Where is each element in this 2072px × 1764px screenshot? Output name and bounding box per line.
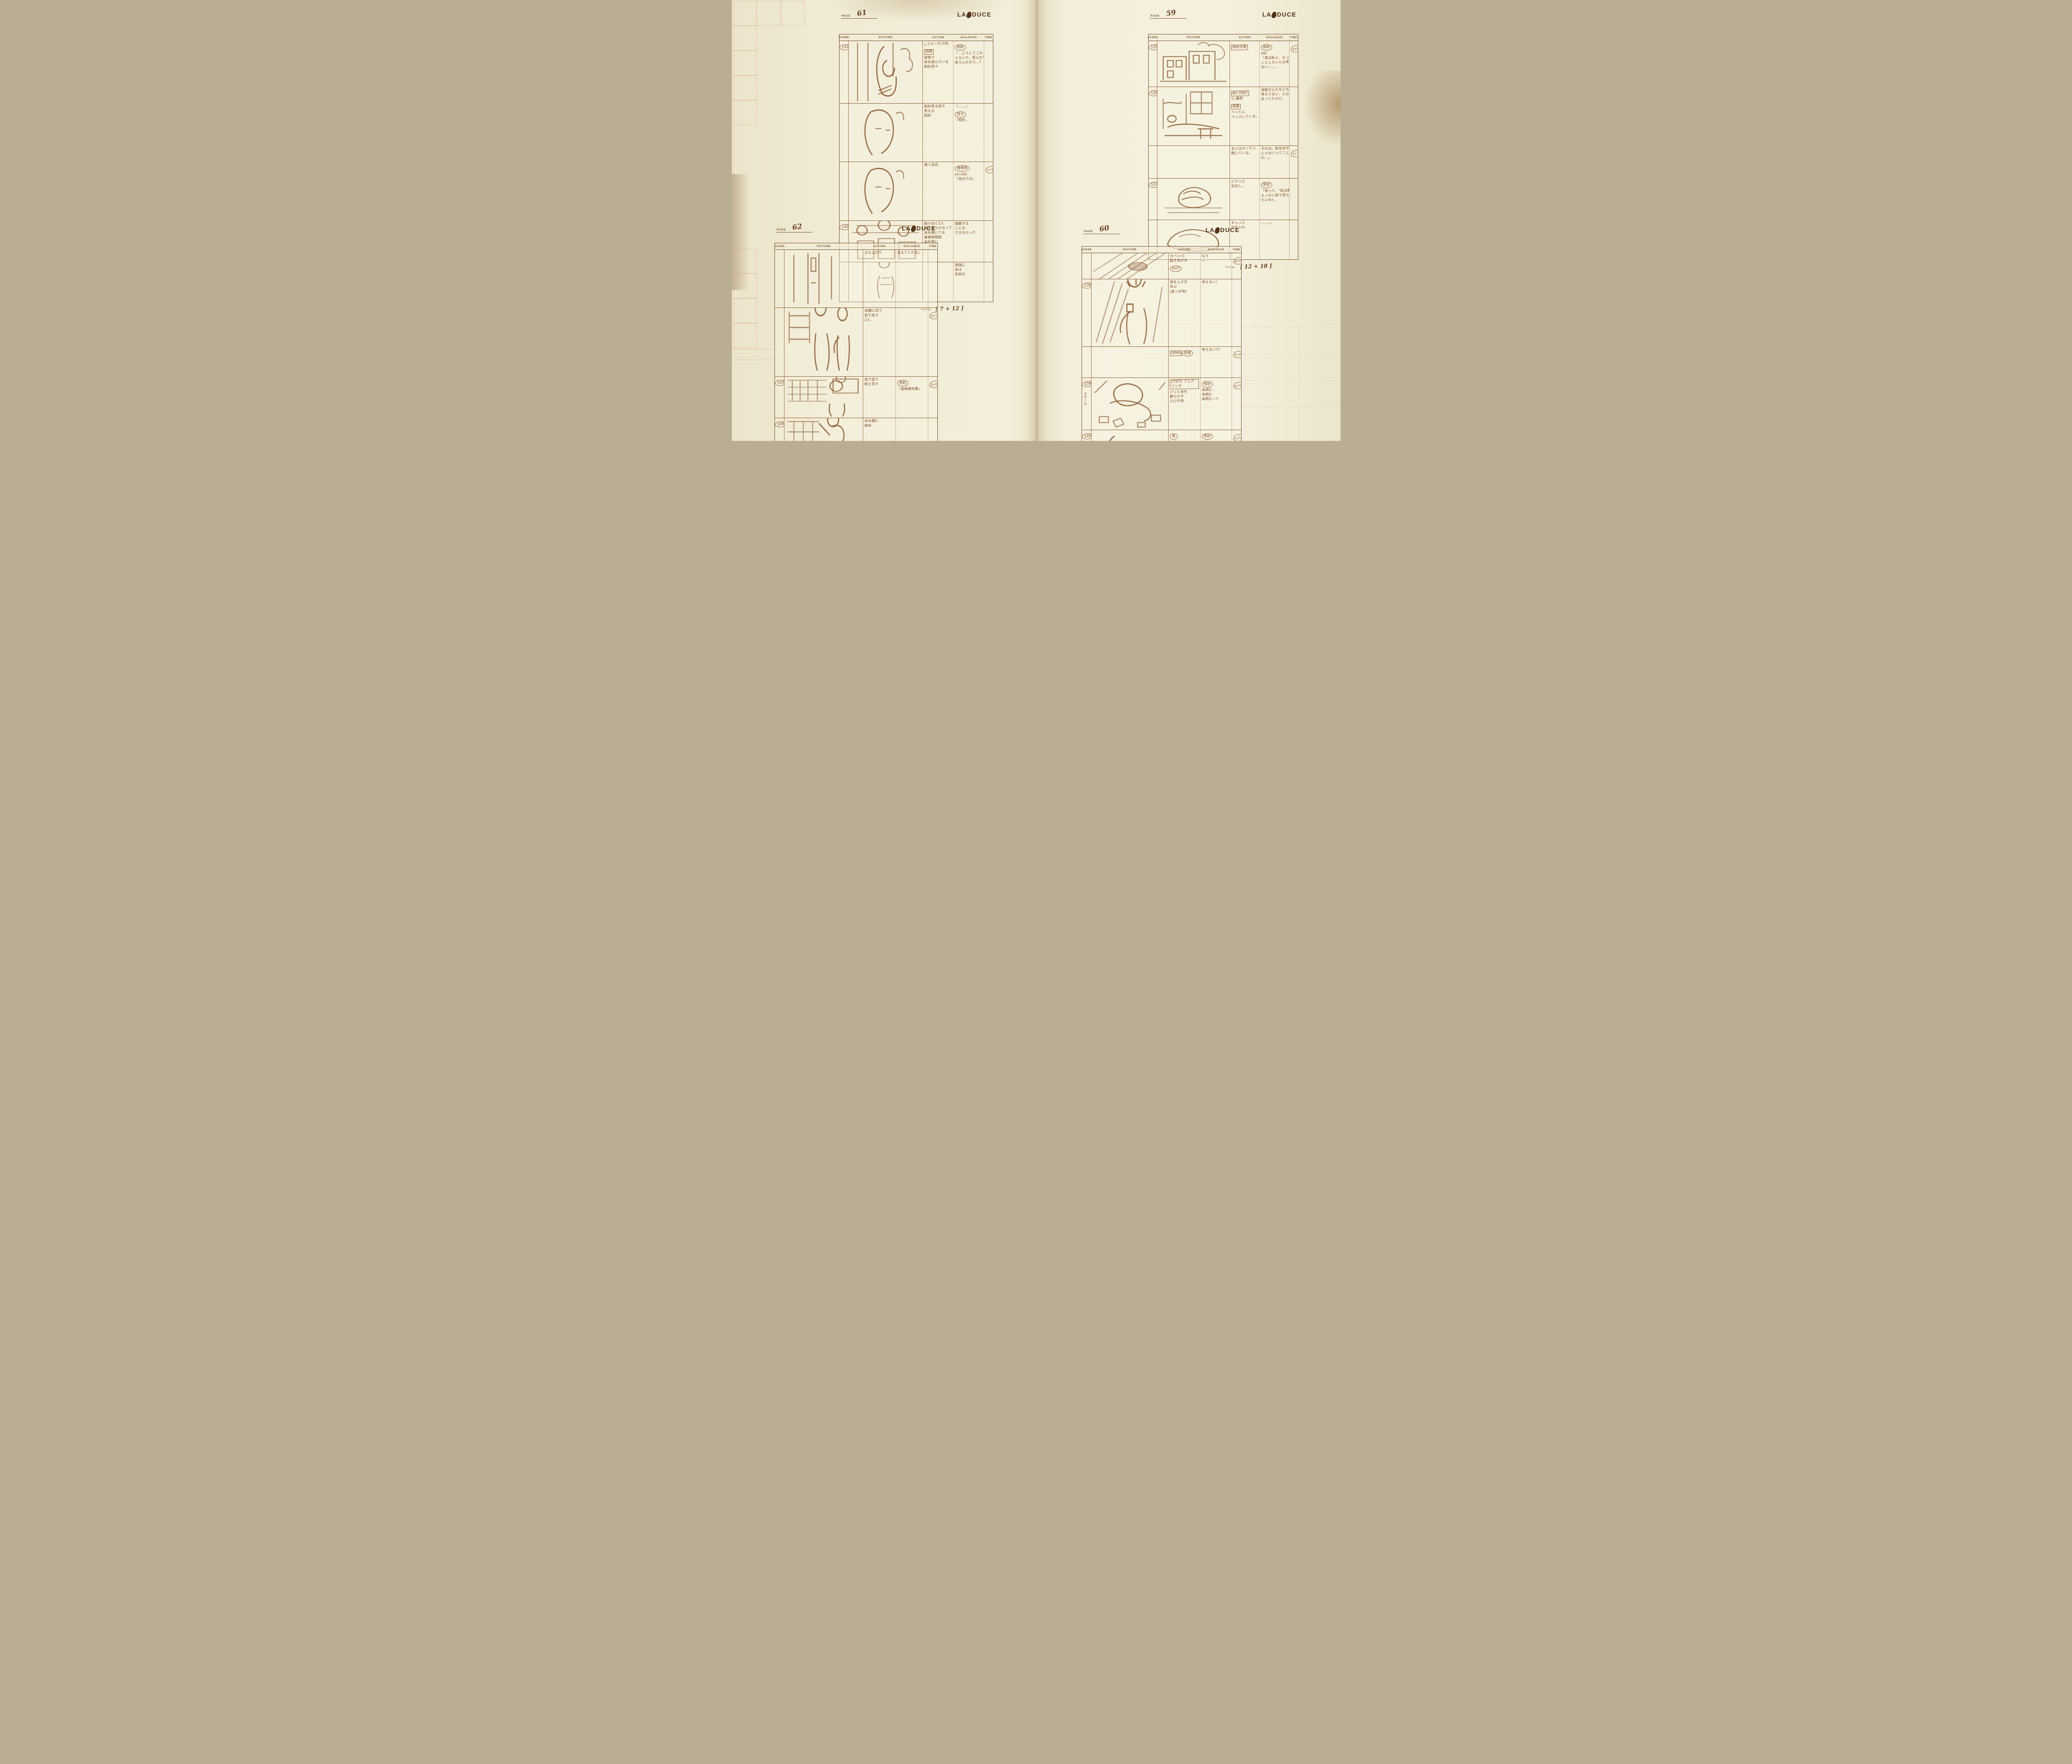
sheet-header: PAGE 60 LA DUCE (1082, 222, 1242, 246)
column-header-picture: PICTURE (784, 243, 863, 249)
scene-cell (840, 162, 849, 220)
leaf-logo-icon (1271, 11, 1278, 19)
speaker-name: 和紗 (1261, 44, 1272, 51)
handwritten-note: 思うんだろう…? (955, 60, 983, 65)
storyboard-row: 本棚に向う目で追う2人.5+18 (775, 308, 937, 377)
column-header-action: ACTION (923, 34, 954, 41)
registration-mark (733, 249, 757, 273)
laduce-logo: LA DUCE (957, 12, 991, 18)
scene-cell (775, 250, 785, 307)
scene-number: 143 (775, 380, 785, 386)
storyboard-rows: 立ち上がり与えてくれる」本棚に向う目で追う2人.5+18143目で追う和と百々和… (775, 250, 937, 441)
speaker-name: 和紗 (955, 44, 966, 51)
sketch-house (1157, 41, 1230, 87)
handwritten-note: ひびき有 (1170, 399, 1199, 404)
scene-number: 144 (775, 421, 785, 428)
picture-cell (1157, 87, 1230, 145)
note-box: 2T打ち フェアリング (1170, 379, 1199, 390)
dialogue-cell: もう— (1201, 253, 1232, 279)
time-badge: 7+18 (1290, 149, 1297, 158)
handwritten-note: △フォーカスIN (924, 41, 952, 46)
picture-cell (784, 308, 863, 376)
storyboard-row: 135和紗の家和紗(M)「泉は私と、えっちいことしたいとは考えてない…、、、3+… (1149, 41, 1298, 87)
storyboard-row: 和紗見る百々考える和紗「……」百々「和紗… (840, 104, 993, 162)
logo-text-left: LA (1205, 227, 1215, 234)
dialogue-cell (896, 418, 928, 441)
time-cell: 8+18 (1232, 378, 1241, 430)
picture-cell (1157, 146, 1230, 178)
handwritten-note: 「…どうしてこれ (955, 51, 983, 56)
sketch-rush-feet (1092, 253, 1168, 279)
page-label: PAGE (842, 15, 851, 17)
page-gutter-shadow (1027, 0, 1046, 441)
scene-cell: 138 (1082, 279, 1092, 346)
laduce-logo: LA DUCE (1262, 12, 1296, 18)
sketch-face-hand (1092, 430, 1168, 441)
column-headers: SCENE PICTURE ACTION DIALOGUE TIME (840, 34, 993, 41)
registration-mark (733, 273, 757, 298)
scene-number: 137 (1149, 181, 1158, 188)
scene-number: 136 (1149, 90, 1158, 97)
storyboard-row: 137ピクッと反応し。和紗「待って、〝私は泉にえっちい目で見られたいの?〟 (1149, 179, 1298, 220)
time-cell (984, 221, 992, 262)
dialogue-cell: それは、私を好きじゃないってことなのか…」 (1260, 146, 1290, 178)
dialogue-cell: 、、、、、」 (1260, 220, 1290, 259)
sketch-bed-sleep (1157, 179, 1230, 220)
sketch-scream (1092, 279, 1168, 346)
page-field: PAGE 62 (776, 223, 813, 232)
handwritten-note: 納め (864, 423, 894, 428)
scene-cell: 136 (1149, 87, 1158, 145)
note-box: BG ONLY (1231, 90, 1249, 96)
margin-note: スチール (1083, 392, 1088, 405)
time-cell: 3+09 (1290, 41, 1298, 87)
action-cell: 本を棚に納め (863, 418, 896, 441)
dialogue-cell: 「……」百々「和紗… (954, 104, 984, 162)
page-number: 60 (1099, 224, 1110, 233)
handwritten-note: 「自分では」 (955, 177, 983, 181)
time-badge: 6+12 (1233, 256, 1241, 265)
picture-cell (1092, 279, 1169, 346)
handwritten-note: 和紗百々 (924, 64, 952, 69)
speaker-name: 和紗 (897, 380, 908, 387)
sketch-collapse (1092, 378, 1168, 430)
column-header-scene: SCENE (1149, 34, 1158, 41)
scene-cell (775, 308, 785, 376)
scene-cell: 144 (775, 418, 785, 441)
column-header-dialogue: DIALOGUE (1201, 247, 1232, 253)
grid-guide (1299, 327, 1299, 441)
handwritten-note: 与えてくれる」 (897, 250, 927, 256)
logo-text-left: LA (1262, 12, 1271, 18)
storyboard-row: 143目で追う和と百々和紗「曾根崎先輩」2+00 (775, 377, 937, 418)
sketch-window-read (849, 41, 922, 103)
scene-cell: 137 (1149, 179, 1158, 220)
sketch-reach-shelf (784, 418, 863, 441)
scene-number: 141 (840, 44, 849, 51)
time-badge: 5+18 (929, 311, 937, 320)
dialogue-cell: 和紗「あ……」 (1201, 430, 1232, 441)
column-header-picture: PICTURE (1092, 247, 1169, 253)
sketch-face (849, 104, 922, 162)
scene-cell: 143 (775, 377, 785, 418)
time-badge: 2+00 (1233, 350, 1241, 359)
handwritten-note: 和紗 (924, 113, 952, 118)
time-cell: 6+12 (1232, 253, 1241, 279)
handwritten-note: 言ってたけど、 (1261, 97, 1288, 102)
time-badge: 7+12 (985, 165, 993, 174)
registration-mark (733, 75, 757, 100)
speaker-name: 和紗 (1261, 182, 1272, 189)
picture-cell (849, 104, 923, 162)
time-cell: 7+12 (984, 162, 992, 220)
registration-mark (757, 1, 781, 26)
column-header-scene: SCENE (1082, 247, 1092, 253)
picture-cell (849, 162, 923, 220)
page-label: PAGE (1151, 15, 1160, 17)
storyboard-table: SCENE PICTURE ACTION DIALOGUE TIME 立ち上がり… (775, 243, 938, 441)
picture-cell (1092, 253, 1169, 279)
storyboard-row: 導く反応曾根崎(4+00)「自分では」7+12 (840, 162, 993, 220)
storyboard-row: 144本を棚に納め (775, 418, 937, 441)
scene-cell (1082, 347, 1092, 377)
storyboard-table: SCENE PICTURE ACTION DIALOGUE TIME ガバッ!と… (1082, 246, 1242, 441)
laduce-logo: LA DUCE (902, 225, 936, 232)
scene-number: 140 (1082, 433, 1092, 440)
time-cell (1290, 220, 1298, 259)
time-cell (928, 250, 937, 307)
handwritten-note: 反応し。 (1231, 184, 1258, 189)
note-box: 回想 (924, 49, 934, 55)
handwritten-note: できなかった (955, 230, 983, 235)
dialogue-cell: 考えない! (1201, 279, 1232, 346)
page-number: 59 (1165, 8, 1176, 18)
action-cell: 立ち上がり (863, 250, 896, 307)
registration-mark (733, 323, 757, 348)
note-box: 和紗の家 (1231, 45, 1248, 51)
scene-cell (1149, 146, 1158, 178)
storyboard-row: 139スチール2T打ち フェアリングバッと本を散らかすひびき有和紗本読む本読む本… (1082, 378, 1241, 431)
dialogue-cell: 考えない!!! (1201, 347, 1232, 377)
action-cell: 和紗見る百々考える和紗 (923, 104, 954, 162)
time-cell (984, 104, 992, 162)
registration-mark (733, 51, 757, 75)
sketch-duo-shelf (784, 308, 863, 376)
handwritten-note: か…」 (1261, 155, 1288, 160)
page-field: PAGE 60 (1083, 225, 1120, 234)
time-badge: 3+09 (1290, 44, 1297, 53)
column-headers: SCENE PICTURE ACTION DIALOGUE TIME (1149, 34, 1298, 41)
action-cell: 和紗の家 (1230, 41, 1260, 87)
dialogue-cell: 和紗「曾根崎先輩」 (896, 377, 928, 418)
column-header-time: TIME (928, 243, 937, 249)
column-headers: SCENE PICTURE ACTION DIALOGUE TIME (775, 243, 937, 250)
logo-text-left: LA (902, 225, 911, 232)
handwritten-note: 、、、、、」 (1261, 221, 1288, 226)
handwritten-note: 和と百々 (864, 382, 894, 387)
speaker-name: 泉 (1170, 433, 1178, 440)
note-box: 部屋 (1231, 104, 1241, 110)
column-header-picture: PICTURE (849, 34, 923, 41)
action-cell: 泉和紗ハッとする和紗 (1169, 430, 1201, 441)
note-box: QPAN (1170, 351, 1182, 356)
dialogue-cell: 和紗「…どうしてこれぐらいで、死んだりって思うんだろう…? (954, 41, 984, 103)
picture-cell (1092, 430, 1169, 441)
sheet-header: PAGE 59 LA DUCE (1148, 7, 1298, 34)
action-cell: ガバッ!と起きあがるOUT (1169, 253, 1201, 279)
speaker-name: 百々 (955, 111, 966, 118)
column-header-time: TIME (984, 34, 992, 41)
sketch-face2 (849, 162, 922, 220)
column-header-action: ACTION (1169, 247, 1201, 253)
registration-mark (733, 298, 757, 323)
sketch-shelf-inset (784, 377, 863, 418)
handwritten-note: ぐらいで、死んだりって (955, 56, 983, 60)
grid-guide (1245, 327, 1245, 441)
logo-text-right: DUCE (972, 12, 991, 18)
scene-number: 135 (1149, 44, 1158, 51)
picture-cell (784, 418, 863, 441)
logo-text-left: LA (957, 12, 966, 18)
registration-mark (733, 100, 757, 125)
time-badge: 2+00 (929, 380, 937, 389)
dialogue-cell: 和紗(M)「泉は私と、えっちいことしたいとは考えてない…、、、 (1260, 41, 1290, 87)
registration-mark (733, 125, 734, 229)
handwritten-note: 和紗 (1170, 440, 1199, 441)
action-cell: 目で追う和と百々 (863, 377, 896, 418)
page-number: 61 (856, 8, 867, 18)
time-cell (1232, 279, 1241, 346)
sketch-door (784, 250, 863, 307)
handwritten-note: 起きあがる (1170, 258, 1199, 264)
column-header-dialogue: DIALOGUE (1260, 34, 1290, 41)
handwritten-note: (息つぎ有) (1170, 289, 1199, 295)
storyboard-row: まどはカーテン閉じている。それは、私を好きじゃないってことなのか…」7+18 (1149, 146, 1298, 179)
time-badge: 1+12 (1233, 433, 1241, 441)
scene-cell (1082, 253, 1092, 279)
dialogue-cell: 和紗本読む本読む本読む—!! (1201, 378, 1232, 430)
speaker-name: 和紗 (1201, 433, 1213, 440)
handwritten-note: 考えない!!! (1201, 347, 1230, 353)
scene-cell: 139スチール (1082, 378, 1092, 430)
time-cell (1290, 179, 1298, 220)
column-header-dialogue: DIALOGUE (896, 243, 928, 249)
time-cell: 5+18 (928, 308, 937, 376)
handwritten-note: 考えない! (1201, 280, 1230, 286)
dialogue-cell: 与えてくれる」 (896, 250, 928, 307)
handwritten-note: 2人. (864, 317, 894, 323)
dialogue-cell: 感情に本は名前を (954, 262, 984, 301)
sketch-bedroom (1157, 87, 1230, 145)
storyboard-rows: ガバッ!と起きあがるOUTもう—6+12138耳をふさぎ叫ぶ(息つぎ有)考えない… (1082, 253, 1241, 441)
scene-cell: 135 (1149, 41, 1158, 87)
handwritten-note: つっぷしている。 (1231, 114, 1258, 119)
dialogue-cell: 和紗「待って、〝私は泉にえっちい目で見られたいの?〟 (1260, 179, 1290, 220)
storyboard-sheet-page-61: PAGE 61 LA DUCE SCENE PICTURE ACTION DIA… (839, 7, 993, 225)
registration-mark (781, 1, 805, 26)
registration-mark (732, 349, 777, 349)
action-cell: まどはカーテン閉じている。 (1230, 146, 1260, 178)
time-cell: 7+18 (1290, 146, 1298, 178)
total-value: [ 7 + 12 ] (935, 305, 964, 312)
handwritten-note: (M) (1261, 51, 1288, 56)
handwritten-note: ない…、、、 (1261, 65, 1288, 70)
column-header-scene: SCENE (840, 34, 849, 41)
laduce-logo: LA DUCE (1205, 227, 1239, 234)
storyboard-row: ガバッ!と起きあがるOUTもう—6+12 (1082, 253, 1241, 279)
storyboard-row: 141△フォーカスIN回想部室で本を読んでいる和紗百々和紗「…どうしてこれぐらい… (840, 41, 993, 104)
action-cell: QPAN読者 (1169, 347, 1201, 377)
column-header-dialogue: DIALOGUE (954, 34, 984, 41)
registration-mark (733, 26, 757, 51)
handwritten-note: 立ち上がり (864, 250, 894, 256)
dialogue-cell: 浅田さんたちとも考えてない、とは言ってたけど、 (1260, 87, 1290, 145)
scene-number: 138 (1082, 282, 1092, 289)
column-header-picture: PICTURE (1157, 34, 1230, 41)
page-label: PAGE (777, 228, 786, 231)
time-cell (1290, 87, 1298, 145)
action-cell: BG ONLY½ 兼用部屋ベットにつっぷしている。 (1230, 87, 1260, 145)
sheet-header: PAGE 61 LA DUCE (839, 7, 993, 34)
handwritten-note: 「……」 (955, 104, 983, 109)
page-number: 62 (792, 222, 803, 232)
handwritten-note: ことしたいとは考えて (1261, 60, 1288, 65)
logo-text-right: DUCE (1277, 12, 1296, 18)
action-cell: 2T打ち フェアリングバッと本を散らかすひびき有 (1169, 378, 1201, 430)
picture-cell (1092, 347, 1169, 377)
picture-cell (849, 41, 923, 103)
handwritten-note: 閉じている。 (1231, 151, 1258, 156)
page-field: PAGE 59 (1150, 9, 1187, 19)
time-cell: 1+12 (1232, 430, 1241, 441)
speaker-name: 曾根崎 (955, 165, 970, 172)
handwritten-note: たいの?〟 (1261, 198, 1288, 203)
handwritten-note: 導く反応 (924, 163, 952, 168)
dialogue-cell: 理解することのできなかった (954, 221, 984, 262)
storyboard-sheet-page-60: PAGE 60 LA DUCE SCENE PICTURE ACTION DIA… (1082, 222, 1242, 438)
handwritten-note: ½ 兼用 (1231, 97, 1258, 102)
action-cell: 本棚に向う目で追う2人. (863, 308, 896, 376)
storyboard-row: 138耳をふさぎ叫ぶ(息つぎ有)考えない! (1082, 279, 1241, 347)
storyboard-row: 140泉和紗ハッとする和紗和紗「あ……」1+12 (1082, 430, 1241, 441)
storyboard-sheet-page-59: PAGE 59 LA DUCE SCENE PICTURE ACTION DIA… (1148, 7, 1298, 227)
action-cell: 導く反応 (923, 162, 954, 220)
sheet-header: PAGE 62 LA DUCE (775, 220, 938, 243)
storyboard-row: 136BG ONLY½ 兼用部屋ベットにつっぷしている。浅田さんたちとも考えてな… (1149, 87, 1298, 146)
leaf-logo-icon (1215, 227, 1221, 234)
time-cell (984, 262, 992, 301)
column-headers: SCENE PICTURE ACTION DIALOGUE TIME (1082, 247, 1241, 253)
logo-text-right: DUCE (1220, 227, 1239, 234)
action-cell: △フォーカスIN回想部室で本を読んでいる和紗百々 (923, 41, 954, 103)
handwritten-note: 本読む—!! (1201, 397, 1230, 402)
page-field: PAGE 61 (841, 9, 878, 19)
scanned-storyboard-spread: PAGE 61 LA DUCE SCENE PICTURE ACTION DIA… (732, 0, 1341, 441)
total-value: [ 12 + 18 ] (1240, 263, 1272, 271)
time-cell (928, 418, 937, 441)
action-cell: ピクッと反応し。 (1230, 179, 1260, 220)
column-header-scene: SCENE (775, 243, 785, 249)
picture-cell (1092, 378, 1169, 430)
time-cell: 2+00 (928, 377, 937, 418)
registration-mark (733, 1, 757, 26)
speaker-name: 和紗 (1201, 381, 1213, 387)
time-cell: 2+00 (1232, 347, 1241, 377)
leaf-logo-icon (911, 225, 917, 232)
column-header-time: TIME (1290, 34, 1298, 41)
speaker-name: 読者 (1182, 350, 1193, 357)
handwritten-note: — (1201, 258, 1230, 264)
handwritten-note: 部室で (924, 55, 952, 60)
handwritten-note: 「あ……」 (1201, 440, 1230, 441)
logo-text-right: DUCE (916, 225, 936, 232)
registration-mark (732, 360, 777, 360)
column-header-action: ACTION (863, 243, 896, 249)
scene-number: 139 (1082, 380, 1092, 387)
handwritten-note: 名前を (955, 272, 983, 277)
time-cell (984, 41, 992, 103)
time-badge: 8+18 (1233, 381, 1241, 390)
column-header-time: TIME (1232, 247, 1241, 253)
storyboard-row: QPAN読者考えない!!!2+00 (1082, 347, 1241, 377)
handwritten-note: 「和紗… (955, 118, 983, 123)
column-header-action: ACTION (1230, 34, 1260, 41)
scene-cell: 140 (1082, 430, 1092, 441)
scene-cell (840, 104, 849, 162)
handwritten-note: 「泉は私と、えっちい (1261, 56, 1288, 60)
scene-cell: 141 (840, 41, 849, 103)
storyboard-row: 立ち上がり与えてくれる」 (775, 250, 937, 308)
leaf-logo-icon (966, 11, 973, 19)
handwritten-note: 叫ぶ (1170, 285, 1199, 290)
handwritten-note: 「曾根崎先輩」 (897, 387, 927, 392)
storyboard-sheet-page-62: PAGE 62 LA DUCE SCENE PICTURE ACTION DIA… (775, 220, 938, 438)
speaker-name: OUT (1170, 266, 1181, 272)
picture-cell (1157, 179, 1230, 220)
action-cell: 耳をふさぎ叫ぶ(息つぎ有) (1169, 279, 1201, 346)
picture-cell (784, 250, 863, 307)
scan-stain (1305, 70, 1341, 145)
page-label: PAGE (1084, 230, 1093, 233)
picture-cell (1157, 41, 1230, 87)
dialogue-cell (896, 308, 928, 376)
dialogue-cell: 曾根崎(4+00)「自分では」 (954, 162, 984, 220)
picture-cell (784, 377, 863, 418)
